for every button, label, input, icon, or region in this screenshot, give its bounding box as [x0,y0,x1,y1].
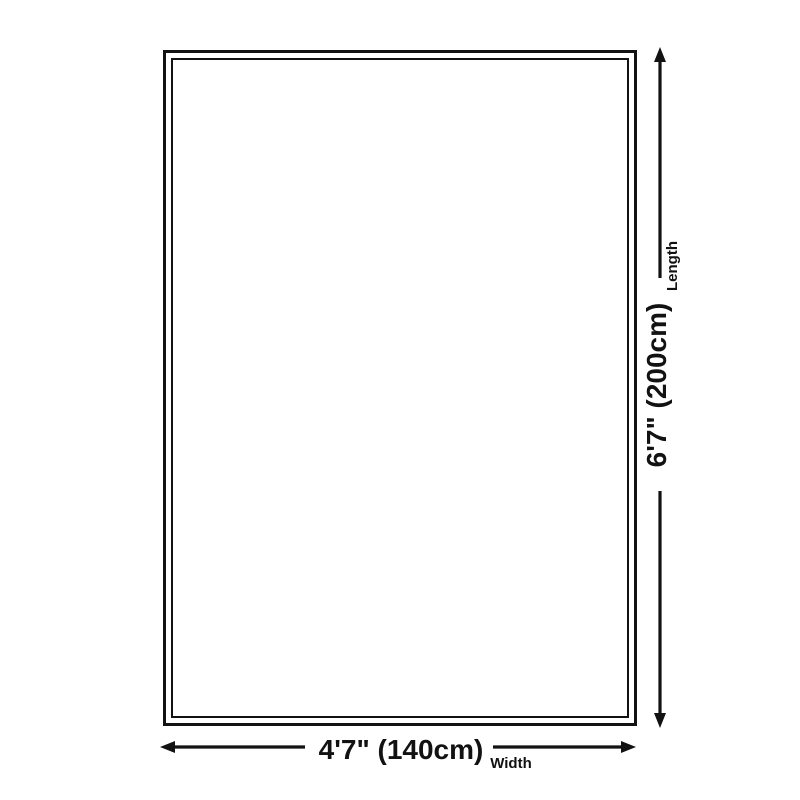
length-value: 6'7" (200cm) [640,305,674,465]
rug-inner-border [171,58,629,718]
dimension-diagram: 6'7" (200cm) Length 4'7" (140cm) Width [0,0,800,800]
rug-outline [163,50,637,726]
length-label: Length [663,236,681,296]
width-label: Width [481,754,541,772]
